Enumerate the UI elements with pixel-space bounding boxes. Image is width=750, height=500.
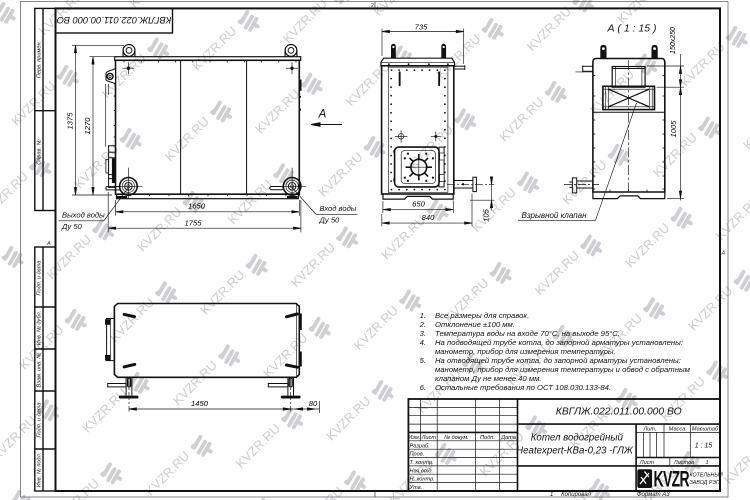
svg-text:2: 2 bbox=[371, 3, 374, 9]
svg-text:А: А bbox=[721, 251, 726, 257]
svg-text:Ду 50: Ду 50 bbox=[61, 222, 83, 231]
svg-text:А: А bbox=[46, 241, 51, 247]
svg-text:105: 105 bbox=[481, 208, 490, 221]
svg-text:Лит.: Лит. bbox=[642, 427, 656, 433]
svg-text:клапаном Ду не менее 40 мм.: клапаном Ду не менее 40 мм. bbox=[435, 374, 542, 383]
svg-text:КВГЛЖ.022.011.00.000 ВО: КВГЛЖ.022.011.00.000 ВО bbox=[556, 407, 682, 418]
svg-text:840: 840 bbox=[422, 213, 435, 222]
svg-text:Выход воды: Выход воды bbox=[62, 211, 105, 220]
svg-text:Н. контр.: Н. контр. bbox=[410, 477, 435, 483]
svg-text:КВГЛЖ.022.011.00.000 ВО: КВГЛЖ.022.011.00.000 ВО bbox=[56, 15, 171, 26]
svg-text:Утв.: Утв. bbox=[409, 485, 423, 491]
svg-text:2.: 2. bbox=[419, 320, 426, 329]
svg-text:Масштаб: Масштаб bbox=[692, 427, 719, 433]
svg-text:150х250: 150х250 bbox=[670, 27, 677, 54]
svg-text:манометр, прибор для измерения: манометр, прибор для измерения температу… bbox=[435, 365, 691, 374]
svg-text:Формат А3: Формат А3 bbox=[637, 492, 670, 498]
svg-text:Взам. инв. №: Взам. инв. № bbox=[37, 353, 43, 388]
svg-text:ЗАВОД РЭП: ЗАВОД РЭП bbox=[690, 480, 721, 486]
svg-text:Листов: Листов bbox=[673, 460, 694, 466]
svg-text:1375: 1375 bbox=[65, 112, 74, 130]
svg-text:650: 650 bbox=[412, 199, 425, 208]
svg-text:6.: 6. bbox=[420, 383, 426, 392]
svg-text:Изм.: Изм. bbox=[408, 435, 420, 441]
svg-text:Остальные требования по ОСТ 10: Остальные требования по ОСТ 108.030.133-… bbox=[435, 383, 611, 392]
svg-text:Все размеры для справок.: Все размеры для справок. bbox=[435, 311, 529, 320]
svg-text:Инв. № дубл.: Инв. № дубл. bbox=[37, 311, 43, 345]
svg-text:1005: 1005 bbox=[669, 120, 678, 138]
svg-text:А ( 1 : 15 ): А ( 1 : 15 ) bbox=[606, 23, 656, 35]
svg-text:Котел водогрейный: Котел водогрейный bbox=[531, 433, 624, 444]
svg-text:Отклонение ±100 мм.: Отклонение ±100 мм. bbox=[435, 320, 515, 329]
svg-text:80: 80 bbox=[309, 399, 318, 408]
svg-text:Heatexpert-КВа-0,23 -ГЛЖ: Heatexpert-КВа-0,23 -ГЛЖ bbox=[516, 446, 634, 457]
svg-text:1270: 1270 bbox=[83, 117, 92, 135]
svg-text:Подп.: Подп. bbox=[480, 435, 495, 441]
svg-text:Лист: Лист bbox=[421, 435, 437, 441]
svg-text:Инв. № подл.: Инв. № подл. bbox=[37, 453, 43, 488]
svg-text:5.: 5. bbox=[420, 356, 426, 365]
svg-text:1650: 1650 bbox=[188, 202, 206, 211]
svg-text:Т. контр.: Т. контр. bbox=[410, 460, 434, 466]
svg-text:Температура воды на входе 70°С: Температура воды на входе 70°С, на выход… bbox=[435, 329, 620, 338]
svg-text:№ докум.: № докум. bbox=[444, 435, 469, 441]
svg-text:735: 735 bbox=[415, 23, 428, 32]
svg-text:Масса: Масса bbox=[669, 427, 686, 433]
svg-text:На отводящей трубе котла, до з: На отводящей трубе котла, до запорной ар… bbox=[435, 356, 681, 365]
svg-text:1755: 1755 bbox=[185, 219, 203, 228]
svg-text:Копировал: Копировал bbox=[561, 492, 591, 498]
svg-text:Лист: Лист bbox=[639, 460, 655, 466]
svg-text:Справ. №: Справ. № bbox=[37, 139, 43, 164]
svg-text:Ду 50: Ду 50 bbox=[319, 215, 341, 224]
svg-text:КОТЕЛЬНЫЙ: КОТЕЛЬНЫЙ bbox=[690, 471, 724, 479]
svg-text:Нач.отд.: Нач.отд. bbox=[410, 468, 434, 474]
svg-text:На подводящей трубе котла, до: На подводящей трубе котла, до запорной а… bbox=[435, 338, 683, 347]
svg-text:Подп. и дата: Подп. и дата bbox=[37, 402, 43, 437]
svg-text:Подп. и дата: Подп. и дата bbox=[37, 260, 43, 295]
svg-text:Перв. примен.: Перв. примен. bbox=[37, 41, 43, 78]
svg-text:1.: 1. bbox=[420, 311, 426, 320]
svg-text:Разраб.: Разраб. bbox=[410, 443, 430, 449]
svg-text:Взрывной клапан: Взрывной клапан bbox=[522, 211, 588, 220]
svg-text:1 : 15: 1 : 15 bbox=[695, 442, 713, 449]
svg-text:4.: 4. bbox=[420, 338, 426, 347]
svg-text:1: 1 bbox=[550, 492, 553, 498]
svg-text:Пров.: Пров. bbox=[410, 452, 425, 458]
svg-text:1450: 1450 bbox=[191, 399, 209, 408]
svg-text:3.: 3. bbox=[420, 329, 426, 338]
svg-text:А: А bbox=[318, 109, 327, 121]
svg-text:манометр, прибор для измерения: манометр, прибор для измерения температу… bbox=[435, 347, 616, 356]
svg-text:Вход воды: Вход воды bbox=[320, 204, 357, 213]
svg-text:KVZR: KVZR bbox=[654, 467, 690, 492]
svg-text:Дата: Дата bbox=[500, 435, 516, 441]
svg-text:1: 1 bbox=[705, 460, 708, 466]
